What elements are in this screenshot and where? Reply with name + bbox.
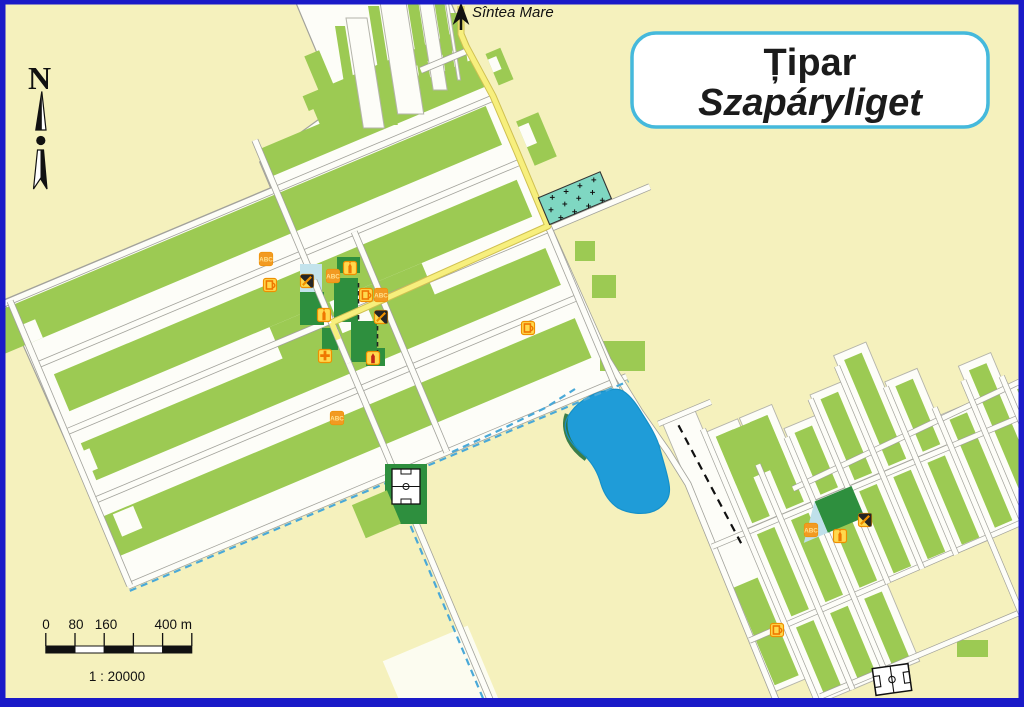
svg-text:ABC: ABC [374,292,388,299]
svg-text:ABC: ABC [326,273,340,280]
svg-text:0: 0 [42,617,50,632]
svg-text:Țipar: Țipar [764,42,857,84]
svg-text:N: N [28,60,51,96]
svg-text:80: 80 [68,617,83,632]
svg-text:1 : 20000: 1 : 20000 [89,669,145,684]
svg-text:400 m: 400 m [154,617,192,632]
svg-text:ABC: ABC [259,256,273,263]
svg-text:160: 160 [95,617,118,632]
svg-text:ABC: ABC [330,415,344,422]
svg-text:Szapáryliget: Szapáryliget [698,82,923,124]
svg-text:ABC: ABC [804,527,818,534]
svg-text:Sîntea Mare: Sîntea Mare [472,4,554,21]
